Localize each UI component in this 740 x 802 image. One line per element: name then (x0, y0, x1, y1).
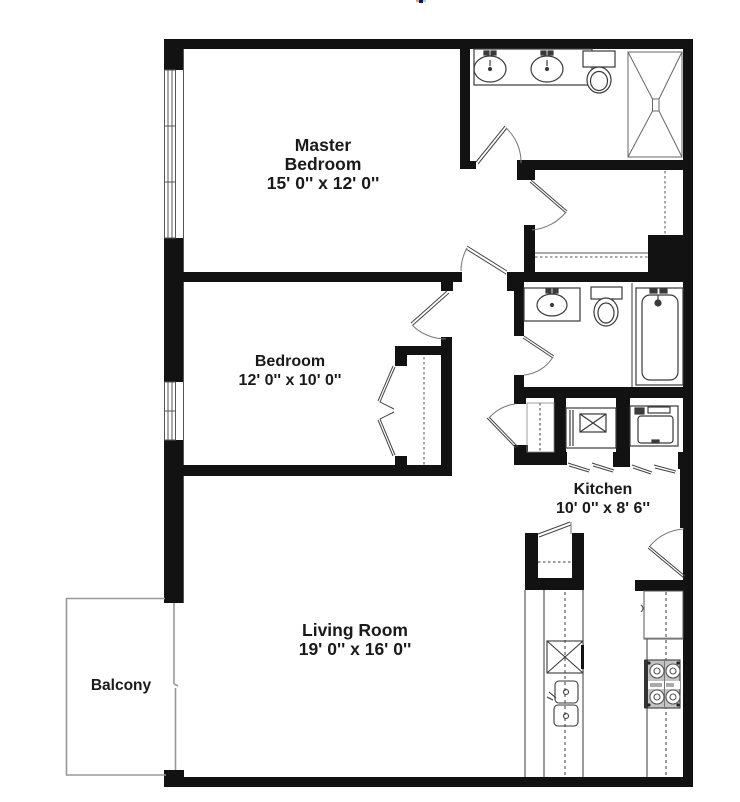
svg-text:Living Room: Living Room (302, 620, 408, 640)
svg-text:Bedroom: Bedroom (255, 353, 325, 370)
svg-text:12' 0'' x 10' 0'': 12' 0'' x 10' 0'' (239, 372, 342, 389)
svg-text:Bedroom: Bedroom (285, 154, 362, 174)
svg-text:19' 0'' x 16' 0'': 19' 0'' x 16' 0'' (299, 639, 412, 659)
svg-text:15' 0'' x 12' 0'': 15' 0'' x 12' 0'' (267, 173, 380, 193)
svg-text:Kitchen: Kitchen (574, 481, 633, 498)
svg-text:10' 0'' x 8' 6'': 10' 0'' x 8' 6'' (556, 500, 650, 517)
svg-text:Master: Master (295, 135, 352, 155)
svg-text:Balcony: Balcony (91, 677, 152, 694)
